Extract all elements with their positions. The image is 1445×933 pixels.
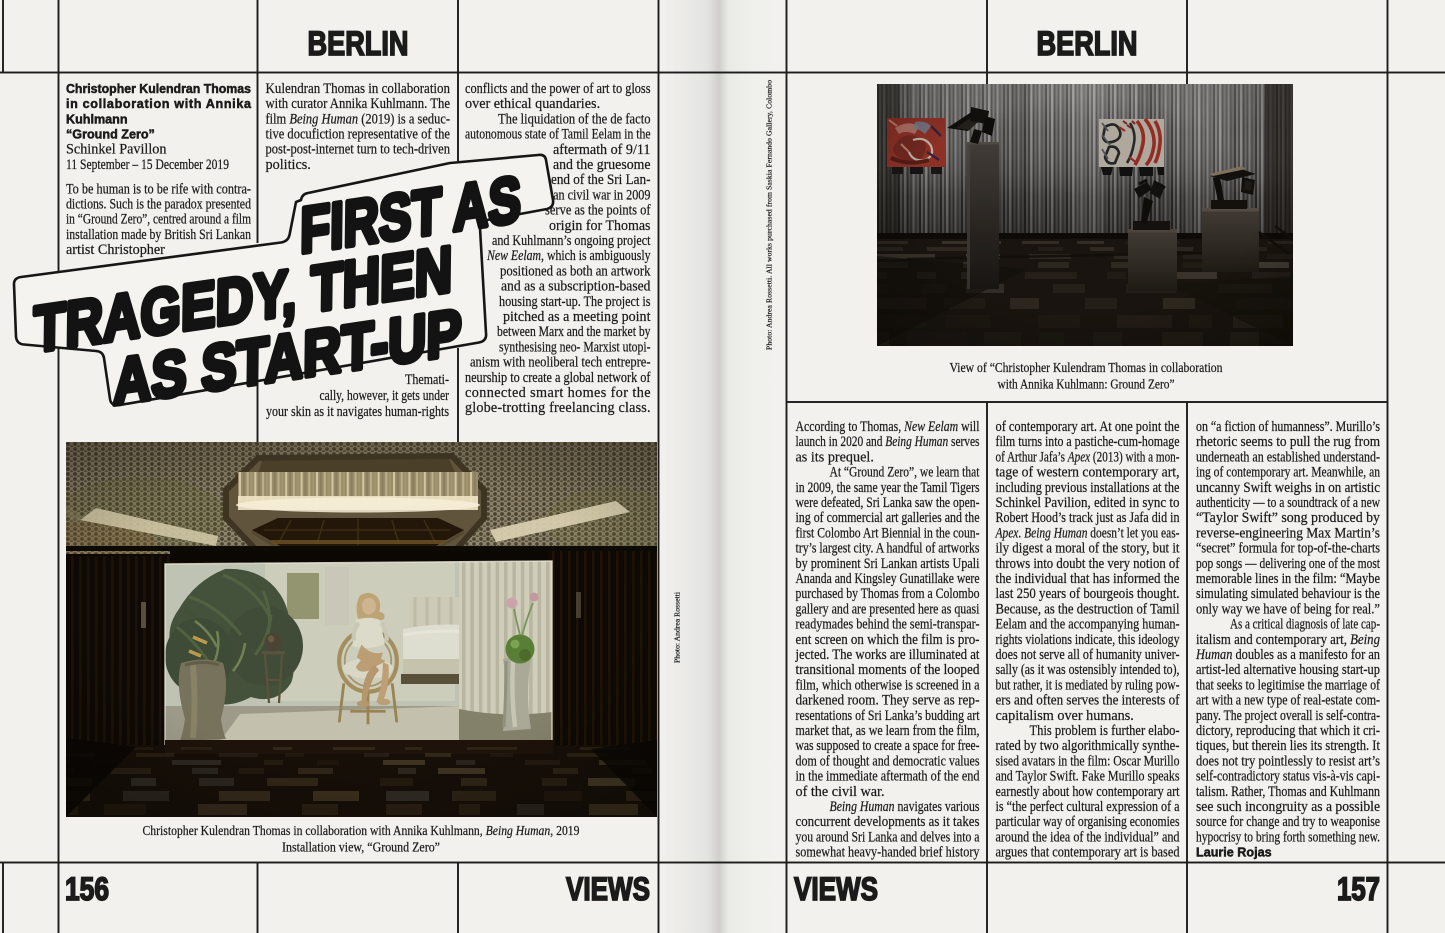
svg-text:installation made by British S: installation made by British Sri Lankan [66,227,251,243]
svg-text:of the civil war.: of the civil war. [796,784,885,800]
svg-text:your skin as it navigates huma: your skin as it navigates human-rights [266,404,449,420]
svg-text:italism and contemporary art,: italism and contemporary art, Being [1196,632,1380,648]
svg-text:The liquidation of the de fact: The liquidation of the de facto [498,111,651,127]
svg-text:over ethical quandaries.: over ethical quandaries. [465,96,600,112]
svg-text:purchased by Thomas from a Col: purchased by Thomas from a Colombo [796,586,980,602]
svg-text:somewhat heavy-handed brief hi: somewhat heavy-handed brief history [796,845,981,861]
svg-text:were defeated, Sri Lanka saw t: were defeated, Sri Lanka saw the open- [796,495,980,511]
svg-text:launch in 2020 and Being Human: launch in 2020 and Being Human serves [796,434,980,450]
svg-text:synthesising neo- Marxist utop: synthesising neo- Marxist utopi- [499,339,651,355]
svg-text:hypocrisy to bring forth somet: hypocrisy to bring forth something new. [1196,829,1380,845]
svg-text:and the gruesome: and the gruesome [553,157,651,173]
svg-text:reverse-engineering Max Martin: reverse-engineering Max Martin’s [1196,525,1380,541]
svg-text:only way we have of being for: only way we have of being for real.” [1196,601,1380,617]
svg-text:film, which otherwise is scree: film, which otherwise is screened in a [796,677,981,693]
svg-text:between Marx and the market by: between Marx and the market by [497,324,651,340]
svg-text:Schinkel Pavillon: Schinkel Pavillon [66,142,167,158]
svg-text:kan civil war in 2009: kan civil war in 2009 [547,187,651,203]
svg-text:artist Christopher: artist Christopher [66,242,165,258]
svg-text:darkened room. They serve as r: darkened room. They serve as rep- [796,693,980,709]
svg-text:rhetoric seems to pull the rug: rhetoric seems to pull the rug from [1196,434,1380,450]
svg-text:uncanny Swift weighs in on art: uncanny Swift weighs in on artistic [1196,480,1380,496]
svg-text:BERLIN: BERLIN [308,25,409,63]
svg-text:is “the perfect cultural expre: is “the perfect cultural expression of a [996,799,1181,815]
svg-text:first Colombo Art Biennial in: first Colombo Art Biennial in the coun- [796,525,980,541]
svg-text:underneath an established unde: underneath an established understand- [1196,449,1380,465]
svg-text:artist-led alternative housing: artist-led alternative housing start-up [1196,662,1380,678]
svg-text:globe-trotting freelancing cla: globe-trotting freelancing class. [465,400,651,416]
svg-text:throws into doubt the very not: throws into doubt the very notion of [996,556,1180,572]
svg-text:of contemporary art. At one po: of contemporary art. At one point the [996,419,1180,435]
svg-text:jected. The works are illumina: jected. The works are illuminated at [795,647,980,663]
svg-text:in “Ground Zero”, centred arou: in “Ground Zero”, centred around a film [66,212,251,228]
svg-text:serve as the points of: serve as the points of [545,203,651,219]
svg-text:politics.: politics. [266,157,311,173]
svg-text:11 September – 15 December 201: 11 September – 15 December 2019 [66,157,229,173]
svg-text:housing start-up. The project: housing start-up. The project is [499,294,651,310]
svg-text:neurship to create a global ne: neurship to create a global network of [465,370,651,386]
svg-text:origin for Thomas: origin for Thomas [549,218,651,234]
svg-text:positioned as both an artwork: positioned as both an artwork [500,263,651,279]
svg-text:VIEWS: VIEWS [566,871,650,907]
svg-text:see such incongruity as a poss: see such incongruity as a possible [1196,799,1380,815]
svg-text:film Being Human (2019) is a s: film Being Human (2019) is a seduc- [266,111,451,127]
svg-text:pitched as a meeting point: pitched as a meeting point [503,309,651,325]
svg-text:Human doubles as a manifesto f: Human doubles as a manifesto for an [1195,647,1380,663]
svg-text:Photo: Andrea Rossetti. All wo: Photo: Andrea Rossetti. All works purcha… [765,80,774,350]
svg-text:aftermath of 9/11: aftermath of 9/11 [553,142,651,158]
svg-text:tive docufiction representativ: tive docufiction representative of the [266,126,451,142]
svg-text:New Eelam, which is ambiguousl: New Eelam, which is ambiguously [486,248,651,264]
svg-text:cally, however, it gets under: cally, however, it gets under [320,388,450,404]
svg-text:and Taylor Swift. Fake Murillo: and Taylor Swift. Fake Murillo speaks [996,769,1180,785]
svg-text:156: 156 [65,871,109,907]
svg-text:Because, as the destruction of: Because, as the destruction of Tamil [996,601,1180,617]
svg-text:the individual that has inform: the individual that has informed the [996,571,1180,587]
svg-text:Kuhlmann: Kuhlmann [66,112,128,126]
svg-text:Robert Hood’s track just as Ja: Robert Hood’s track just as Jafa did in [996,510,1180,526]
svg-text:View of “Christopher Kulendram: View of “Christopher Kulendram Thomas in… [950,360,1223,375]
svg-text:with Annika Kuhlmann: Ground Z: with Annika Kuhlmann: Ground Zero” [998,377,1175,392]
svg-text:tiques, but therein lies its s: tiques, but therein lies its strength. I… [1196,738,1380,754]
svg-text:At “Ground Zero”, we learn tha: At “Ground Zero”, we learn that [830,465,980,481]
svg-text:around the idea of the individ: around the idea of the individual” and [996,829,1180,845]
svg-text:Apex. Being Human doesn’t let: Apex. Being Human doesn’t let you eas- [995,525,1180,541]
svg-text:pop songs — delivering one of: pop songs — delivering one of the most [1196,556,1380,572]
svg-text:by prominent Sri Lankan artist: by prominent Sri Lankan artists Upali [796,556,980,572]
svg-text:Installation view, “Ground Zer: Installation view, “Ground Zero” [282,840,440,855]
svg-text:but rather, it is mediated by: but rather, it is mediated by ruling pow… [996,677,1180,693]
svg-text:sally (as it was ostensibly in: sally (as it was ostensibly intended to)… [996,662,1180,678]
svg-text:Schinkel Pavilion, edited in s: Schinkel Pavilion, edited in sync to [996,495,1180,511]
svg-text:art with a new type of real-es: art with a new type of real-estate com- [1196,693,1380,709]
svg-text:“Taylor Swift” song produced b: “Taylor Swift” song produced by [1196,510,1381,526]
svg-text:connected smart homes for the: connected smart homes for the [465,385,651,401]
svg-text:memorable lines in the film: “: memorable lines in the film: “Maybe [1196,571,1380,587]
svg-text:post-post-internet turn to tec: post-post-internet turn to tech-driven [266,142,451,158]
svg-text:According to Thomas, New Eelam: According to Thomas, New Eelam will [796,419,980,435]
svg-text:of Arthur Jafa’s Apex (2013) w: of Arthur Jafa’s Apex (2013) with a mon- [996,449,1180,465]
svg-text:Kulendran Thomas in collaborat: Kulendran Thomas in collaboration [266,81,451,97]
svg-text:does not serve all of humanity: does not serve all of humanity univer- [996,647,1180,663]
svg-text:dictions. Such is the paradox: dictions. Such is the paradox presented [66,197,251,213]
svg-text:transitional moments of the lo: transitional moments of the looped [796,662,980,678]
svg-text:end of the Sri Lan-: end of the Sri Lan- [551,172,651,188]
svg-text:Being Human navigates various: Being Human navigates various [830,799,980,815]
svg-text:VIEWS: VIEWS [794,871,878,907]
svg-text:sised avatars in the film: Osc: sised avatars in the film: Oscar Murillo [996,753,1180,769]
svg-text:as its prequel.: as its prequel. [796,449,874,465]
svg-text:Ananda and Kingsley Gunatillak: Ananda and Kingsley Gunatillake were [796,571,980,587]
svg-text:Photo: Andrea Rossetti: Photo: Andrea Rossetti [673,592,682,663]
svg-text:particular way of organising e: particular way of organising economies [996,814,1180,830]
svg-text:and as a subscription-based: and as a subscription-based [501,279,651,295]
svg-text:in 2009, the same year the Tam: in 2009, the same year the Tamil Tigers [796,480,980,496]
svg-text:in collaboration with Annika: in collaboration with Annika [66,97,252,111]
svg-text:in the immediate aftermath of: in the immediate aftermath of the end [796,769,980,785]
svg-text:source for change and try to w: source for change and try to weaponise [1196,814,1380,830]
svg-text:resentations of Sri Lanka’s bu: resentations of Sri Lanka’s budding art [796,708,980,724]
svg-text:dom of thought and democratic: dom of thought and democratic values [796,753,980,769]
svg-text:capitalism over humans.: capitalism over humans. [996,708,1134,724]
svg-text:ing of commercial art gallerie: ing of commercial art galleries and the [796,510,980,526]
svg-text:Christopher Kulendran Thomas: Christopher Kulendran Thomas [66,82,251,96]
svg-text:rated by two algorithmically s: rated by two algorithmically synthe- [996,738,1180,754]
svg-text:ers and often serves the inter: ers and often serves the interests of [996,693,1180,709]
svg-text:does not try pointlessly to re: does not try pointlessly to resist art’s [1196,753,1380,769]
svg-text:anism with neoliberal tech ent: anism with neoliberal tech entrepre- [470,355,651,371]
svg-text:readymades behind the semi-tra: readymades behind the semi-transpar- [796,617,980,633]
svg-text:dictory, reproducing that whic: dictory, reproducing that which it cri- [1196,723,1380,739]
svg-text:ent screen on which the film i: ent screen on which the film is pro- [796,632,980,648]
svg-text:self-contradictory status vis-: self-contradictory status vis-à-vis capi… [1196,769,1380,785]
svg-text:try’s largest city. A handful: try’s largest city. A handful of artwork… [796,541,980,557]
svg-text:with curator Annika Kuhlmann.: with curator Annika Kuhlmann. The [266,96,451,112]
svg-text:autonomous state of Tamil Eela: autonomous state of Tamil Eelam in the [465,127,651,143]
svg-text:Laurie Rojas: Laurie Rojas [1196,846,1272,860]
svg-text:talism. Rather, Thomas and Kuh: talism. Rather, Thomas and Kuhlmann [1196,784,1380,800]
svg-text:you around Sri Lanka and delve: you around Sri Lanka and delves into a [796,829,981,845]
svg-text:on “a fiction of humanness”. M: on “a fiction of humanness”. Murillo’s [1196,419,1380,435]
svg-text:ing of contemporary art. Meanw: ing of contemporary art. Meanwhile, an [1196,465,1380,481]
svg-text:As a critical diagnosis of lat: As a critical diagnosis of late cap- [1230,617,1380,633]
svg-text:market that, as we learn from: market that, as we learn from the film, [796,723,980,739]
svg-text:BERLIN: BERLIN [1037,25,1138,63]
svg-text:gallery and are presented here: gallery and are presented here as quasi [796,601,980,617]
svg-text:conflicts and the power of art: conflicts and the power of art to gloss [465,81,651,97]
svg-text:pany. The project overall is s: pany. The project overall is self-contra… [1196,708,1380,724]
svg-text:film turns into a pastiche-cum: film turns into a pastiche-cum-homage [996,434,1180,450]
svg-text:including previous installatio: including previous installations at the [996,480,1180,496]
svg-text:authenticity — to a soundtrack: authenticity — to a soundtrack of a new [1196,495,1381,511]
svg-text:Christopher Kulendran Thomas i: Christopher Kulendran Thomas in collabor… [143,823,580,838]
svg-text:Eelam and the accompanying hum: Eelam and the accompanying human- [996,617,1180,633]
svg-text:concurrent developments as it: concurrent developments as it takes [796,814,980,830]
svg-text:simulating simulated behaviour: simulating simulated behaviour is the [1196,586,1380,602]
svg-text:earnestly about how contempora: earnestly about how contemporary art [996,784,1180,800]
svg-text:last 250 years of bourgeois th: last 250 years of bourgeois thought. [996,586,1180,602]
svg-text:was supposed to create a space: was supposed to create a space for free- [796,738,980,754]
svg-text:This problem is further elabo-: This problem is further elabo- [1030,723,1180,739]
svg-text:“Ground Zero”: “Ground Zero” [66,127,155,141]
svg-text:rights violations indicate, th: rights violations indicate, this ideolog… [996,632,1181,648]
svg-text:157: 157 [1337,871,1380,907]
svg-text:ily digest a moral of the stor: ily digest a moral of the story, but it [996,541,1180,557]
svg-text:argues that contemporary art i: argues that contemporary art is based [996,845,1180,861]
svg-text:that seeks to legitimise the m: that seeks to legitimise the marriage of [1196,677,1380,693]
svg-text:“secret” formula for top-of-th: “secret” formula for top-of-the-charts [1196,541,1380,557]
svg-text:To be human is to be rife with: To be human is to be rife with contra- [66,181,251,197]
svg-text:tage of western contemporary a: tage of western contemporary art, [996,465,1180,481]
